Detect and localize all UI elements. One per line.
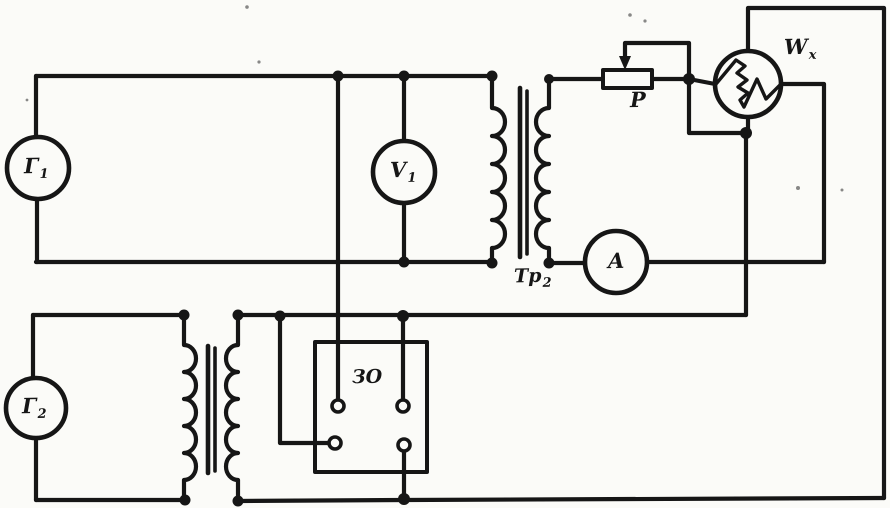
wire-secondary2-bottom bbox=[238, 498, 884, 501]
transformer2-secondary-winding bbox=[536, 79, 549, 263]
oscillograph-label: ЗО bbox=[352, 368, 384, 392]
junction-dots bbox=[179, 71, 753, 507]
generator2-label: Г2 bbox=[22, 395, 47, 421]
oscillograph-terminal-bottomright bbox=[398, 439, 410, 451]
voltmeter-label: V1 bbox=[390, 159, 417, 185]
circuit-diagram: Г1 Г2 V1 A Wx P Тр2 ЗО bbox=[0, 0, 890, 508]
rheostat-wiper-arrowhead bbox=[619, 56, 631, 70]
transformer2-label: Тр2 bbox=[514, 267, 552, 291]
oscillograph-terminal-topright bbox=[397, 400, 409, 412]
bolometer-label: Wx bbox=[784, 36, 817, 63]
rheostat-label: P bbox=[630, 89, 647, 115]
transformer1-primary-winding bbox=[184, 315, 196, 500]
generator1-label: Г1 bbox=[24, 155, 49, 181]
transformer1-secondary-winding bbox=[226, 315, 238, 501]
ammeter-label: A bbox=[608, 250, 626, 276]
bolometer-lead-right bbox=[781, 84, 824, 262]
schematic-drawing bbox=[0, 0, 890, 508]
oscillograph-terminal-topleft bbox=[332, 400, 344, 412]
rheostat-body bbox=[603, 70, 652, 88]
oscillograph-branch-left bbox=[280, 316, 328, 443]
bolometer-circle bbox=[715, 51, 781, 117]
transformer2-primary-winding bbox=[492, 76, 505, 263]
oscillograph-terminal-bottomleft bbox=[329, 437, 341, 449]
